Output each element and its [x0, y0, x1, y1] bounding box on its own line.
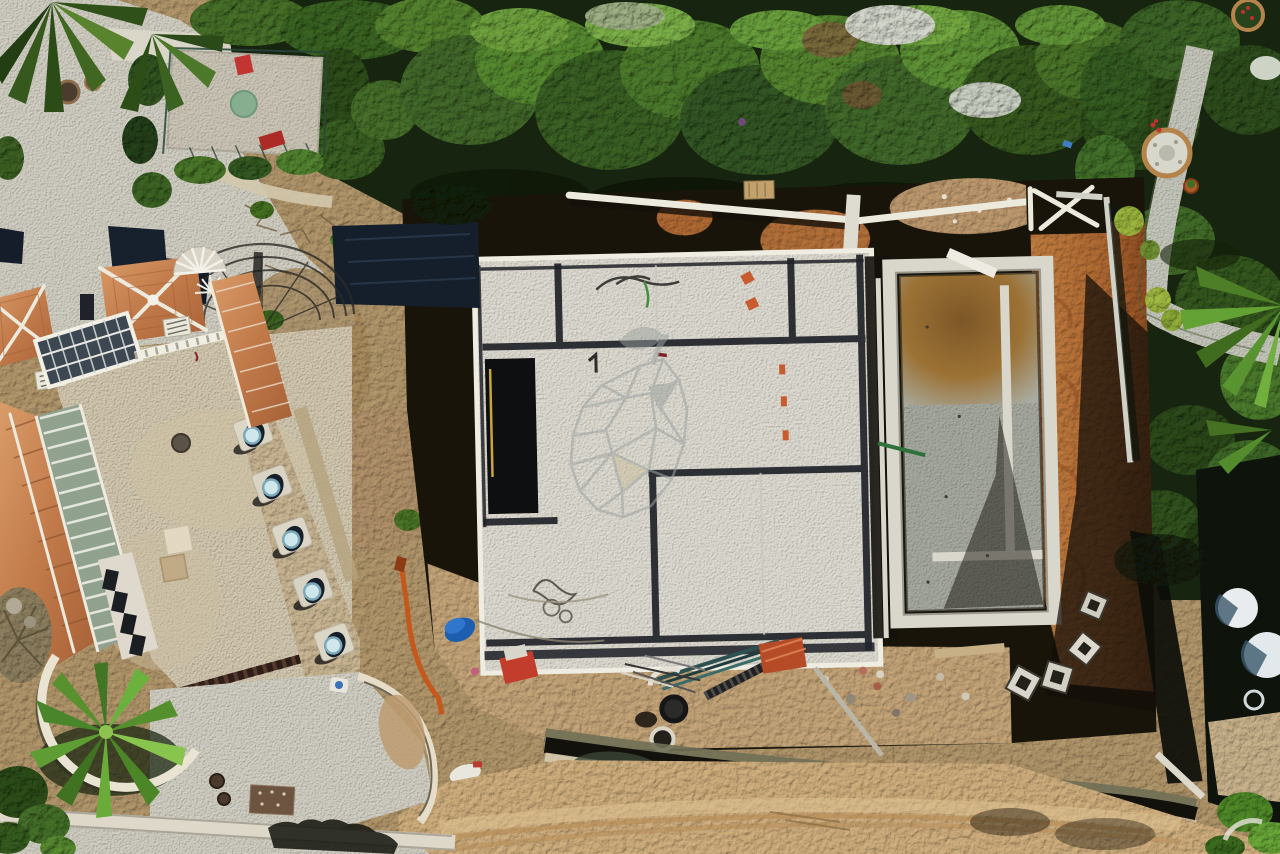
aerial-photo-canvas [0, 0, 1280, 854]
film-grain [0, 0, 1280, 854]
aerial-photo [0, 0, 1280, 854]
